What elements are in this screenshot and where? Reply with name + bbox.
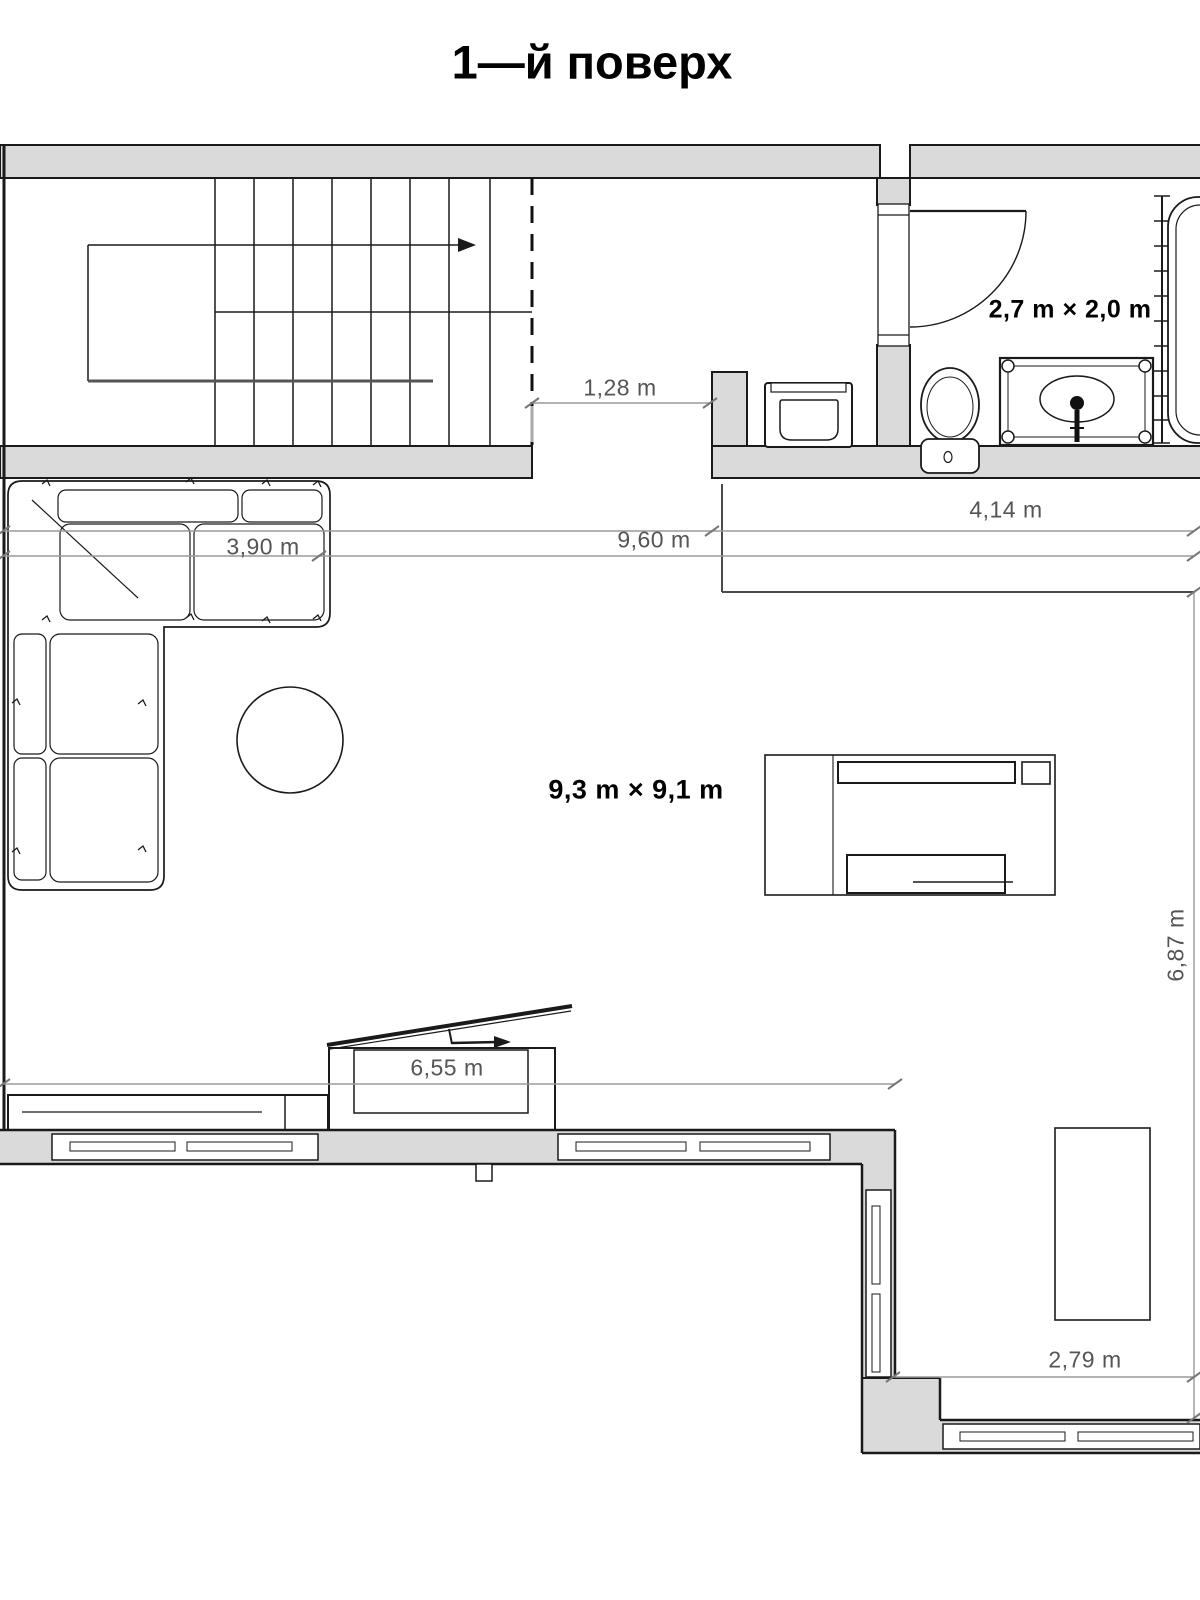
tv-console xyxy=(765,755,1055,895)
zone-boundary xyxy=(722,484,1194,592)
staircase xyxy=(88,178,532,445)
wall-partition-upper xyxy=(877,178,910,205)
bottom-wall xyxy=(0,1130,895,1181)
window xyxy=(866,1190,891,1377)
wall-pilaster xyxy=(476,1164,492,1181)
floor-plan-page: 1—й поверх xyxy=(0,0,1200,1600)
dimension-label-right-wall: 2,79 m xyxy=(1048,1347,1121,1374)
sofa-back-cushion xyxy=(14,758,46,880)
door-frame xyxy=(878,204,909,346)
tv-speaker xyxy=(1022,762,1050,784)
washing-machine-tub xyxy=(780,400,838,440)
sofa-back-cushion xyxy=(242,490,322,522)
bathroom-door xyxy=(878,204,1026,346)
sofa-seat-cushion xyxy=(60,524,190,620)
wall-top-right xyxy=(910,145,1200,178)
sofa-seat-cushion xyxy=(50,634,158,754)
faucet xyxy=(1070,396,1084,410)
bathroom-size-label: 2,7 m × 2,0 m xyxy=(989,296,1152,325)
vanity-sink xyxy=(1000,358,1153,445)
dimension-label-window-wall: 6,55 m xyxy=(410,1055,483,1082)
dimension-label-sofa-length: 3,90 m xyxy=(226,534,299,561)
tv-cabinet xyxy=(847,855,1005,893)
low-cabinet xyxy=(8,1095,328,1130)
toilet xyxy=(921,368,979,473)
washing-machine xyxy=(765,383,852,447)
washing-machine-lid xyxy=(771,383,846,392)
sofa-back-cushion xyxy=(58,490,238,522)
dimension-label-room-depth: 6,87 m xyxy=(1163,908,1190,981)
wall-top-left xyxy=(0,145,880,178)
window xyxy=(943,1424,1200,1449)
coffee-table xyxy=(237,687,343,793)
bathtub xyxy=(1168,197,1200,443)
toilet-flush-button xyxy=(944,452,952,463)
dimension-label-total-width: 9,60 m xyxy=(617,527,690,554)
lid-arrow xyxy=(494,1036,511,1048)
dimension-label-bathroom-wall: 4,14 m xyxy=(969,497,1042,524)
window xyxy=(558,1134,830,1160)
wall-stair-bottom xyxy=(0,446,532,478)
dimension-label-stair-opening: 1,28 m xyxy=(583,375,656,402)
living-room-size-label: 9,3 m × 9,1 m xyxy=(548,775,723,806)
wall-partition-lower xyxy=(877,345,910,448)
sofa-seat-cushion xyxy=(50,758,158,882)
stair-direction-arrow xyxy=(458,238,476,252)
sofa-back-cushion xyxy=(14,634,46,754)
window xyxy=(52,1134,318,1160)
wall-niche-vertical xyxy=(712,372,747,448)
open-lid-line xyxy=(327,1006,572,1045)
tv-screen xyxy=(838,762,1015,783)
side-table xyxy=(1055,1128,1150,1320)
